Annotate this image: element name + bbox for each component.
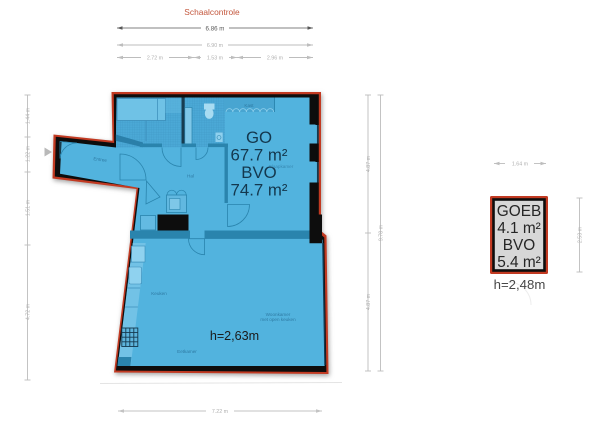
svg-text:Schaalcontrole: Schaalcontrole (184, 7, 240, 17)
svg-text:BVO: BVO (503, 237, 536, 254)
svg-text:4.72 m: 4.72 m (26, 303, 32, 320)
svg-text:1.51 m: 1.51 m (26, 199, 32, 216)
svg-text:1.22 m: 1.22 m (26, 145, 32, 162)
svg-text:Eetkamer: Eetkamer (177, 349, 197, 354)
svg-text:7.22 m: 7.22 m (212, 409, 229, 415)
svg-text:6.90 m: 6.90 m (207, 43, 224, 49)
svg-text:1.53 m: 1.53 m (207, 56, 224, 62)
svg-text:2.96 m: 2.96 m (267, 56, 284, 62)
svg-text:4.87 m: 4.87 m (366, 155, 372, 172)
svg-text:4.1 m²: 4.1 m² (497, 220, 541, 237)
svg-text:4.87 m: 4.87 m (366, 293, 372, 310)
svg-text:h=2,48m: h=2,48m (494, 277, 546, 292)
svg-text:met open keuken: met open keuken (260, 317, 296, 322)
svg-text:2.72 m: 2.72 m (147, 56, 164, 62)
svg-text:Slaapkamer: Slaapkamer (269, 164, 294, 169)
svg-text:5.4 m²: 5.4 m² (497, 254, 541, 271)
svg-text:Keuken: Keuken (151, 291, 167, 296)
svg-text:1.64 m: 1.64 m (512, 162, 529, 168)
svg-text:2.53 m: 2.53 m (578, 226, 584, 243)
svg-text:9.78 m: 9.78 m (379, 224, 385, 241)
svg-text:GOEB: GOEB (497, 203, 541, 220)
svg-text:6.86 m: 6.86 m (206, 25, 225, 32)
svg-text:h=2,63m: h=2,63m (210, 329, 259, 343)
svg-text:GO: GO (246, 128, 272, 147)
svg-text:Kast: Kast (244, 103, 254, 108)
svg-text:67.7 m²: 67.7 m² (231, 146, 288, 165)
svg-text:1.44 m: 1.44 m (26, 107, 32, 124)
svg-text:Hal: Hal (187, 174, 194, 179)
svg-text:74.7 m²: 74.7 m² (231, 181, 288, 200)
